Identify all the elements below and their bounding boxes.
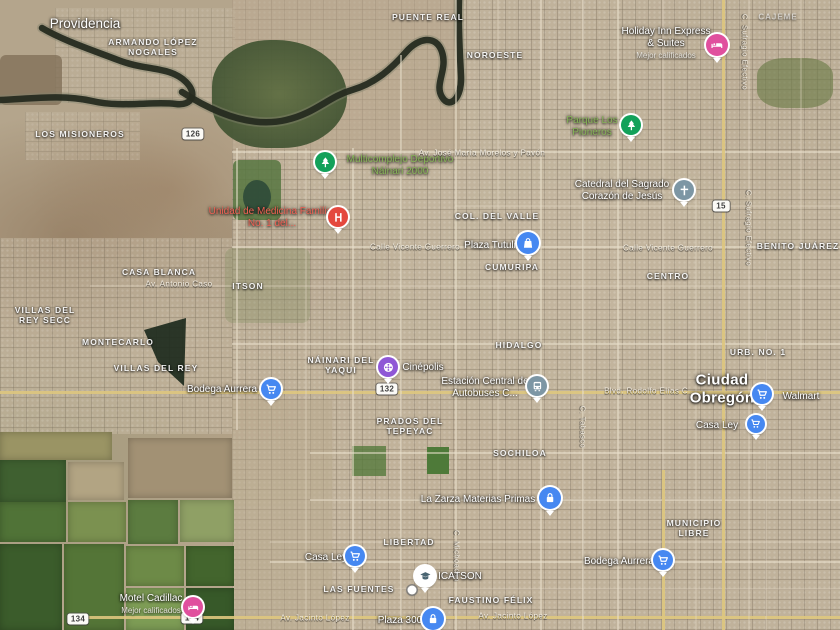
label-av-jos-mar-a-morelos-y-pav-n: Av. José María Morelos y Pavón	[419, 148, 545, 157]
farm-field	[0, 460, 66, 502]
farm-field	[68, 462, 124, 500]
plaza-300-lock-pin[interactable]	[422, 608, 444, 630]
farm-field	[180, 500, 234, 542]
farm-field	[0, 432, 112, 460]
label-walmart[interactable]: Walmart	[783, 391, 820, 403]
road	[617, 0, 619, 630]
farm-field	[186, 546, 234, 586]
la-zarza-lock-pin[interactable]	[539, 487, 561, 509]
catedral-sagrado-corazon-cross-pin[interactable]	[674, 180, 694, 200]
road	[270, 541, 840, 543]
unidad-medicina-familiar-hospital-pin[interactable]	[328, 207, 348, 227]
estacion-central-autobuses-bus-pin[interactable]	[527, 376, 547, 396]
label-av-jacinto-l-pez: Av. Jacinto López	[478, 611, 547, 620]
route-shield-15-1: 15	[713, 201, 730, 212]
label-icatson[interactable]: ICATSON	[438, 571, 482, 583]
casa-ley-cart-pin[interactable]	[345, 546, 365, 566]
label-casa-ley[interactable]: Casa Ley	[305, 552, 347, 564]
route-shield-126-0: 126	[182, 129, 203, 140]
label-sochiloa: SOCHILOA	[493, 448, 547, 458]
label-itson: ITSON	[232, 281, 263, 291]
label-calle-vicente-guerrero: Calle Vicente Guerrero	[623, 243, 713, 252]
farm-field	[126, 546, 184, 586]
satellite-map[interactable]: ProvidenciaARMANDO LÓPEZ NOGALESPUENTE R…	[0, 0, 840, 630]
label-cajeme: CAJEME	[758, 12, 797, 21]
label-sub-holiday-inn-express-suites: Mejor calificados	[620, 51, 712, 60]
casa-ley-norte-cart-pin[interactable]	[747, 415, 765, 433]
label-plaza-tutuli[interactable]: Plaza Tutuli	[464, 240, 516, 252]
bodega-aurrera-sur-cart-pin[interactable]	[653, 550, 673, 570]
label-benito-ju-rez: BENITO JUÁREZ	[757, 241, 840, 251]
label-municipio-libre: MUNICIPIO LIBRE	[658, 518, 730, 538]
label-estaci-n-central-de-autobuses-c[interactable]: Estación Central de Autobuses C...	[429, 376, 541, 400]
label-villas-del-rey-secc: VILLAS DEL REY SECC	[8, 305, 82, 325]
farm-field	[128, 500, 178, 544]
label-c-tabasco: C. Tabasco	[578, 406, 587, 448]
cinepolis-reel-pin[interactable]	[378, 357, 398, 377]
label-multicomplejo-deportivo-n-inari-2000[interactable]: Multicomplejo Deportivo Náinari 2000	[338, 154, 462, 178]
road	[330, 588, 840, 590]
label-av-jacinto-l-pez: Av. Jacinto López	[280, 613, 349, 622]
label-libertad: LIBERTAD	[383, 537, 434, 547]
label-plaza-300[interactable]: Plaza 300	[378, 615, 422, 627]
label-las-fuentes: LAS FUENTES	[323, 584, 394, 594]
label-los-misioneros: LOS MISIONEROS	[35, 129, 125, 139]
label-bodega-aurrera[interactable]: Bodega Aurrera	[584, 556, 654, 568]
label-prados-del-tepeyac: PRADOS DEL TEPEYAC	[372, 416, 448, 436]
road	[748, 0, 750, 630]
label-n-inari-del-yaqui: NÁINARI DEL YAQUI	[306, 355, 376, 375]
label-ciudad-obreg-n: Ciudad Obregón	[682, 371, 762, 406]
farm-field	[0, 502, 66, 542]
label-catedral-del-sagrado-coraz-n-de-jes-s[interactable]: Catedral del Sagrado Corazón de Jesús	[562, 179, 682, 203]
label-col-del-valle: COL. DEL VALLE	[455, 211, 540, 221]
label-bodega-aurrera[interactable]: Bodega Aurrera	[187, 384, 257, 396]
road	[310, 499, 840, 501]
label-centro: CENTRO	[647, 271, 690, 281]
route-shield-134-4: 134	[67, 614, 88, 625]
walmart-cart-pin[interactable]	[752, 384, 772, 404]
multicomplejo-deportivo-tree-pin[interactable]	[315, 152, 335, 172]
label-providencia: Providencia	[50, 16, 121, 32]
icatson-grad-pin[interactable]	[415, 566, 435, 586]
dense-houses-patch	[0, 55, 62, 105]
label-noroeste: NOROESTE	[467, 50, 524, 60]
label-holiday-inn-express-suites[interactable]: Holiday Inn Express & SuitesMejor califi…	[620, 26, 712, 60]
label-cin-polis[interactable]: Cinépolis	[402, 362, 443, 374]
label-calle-vicente-guerrero: Calle Vicente Guerrero	[370, 242, 460, 251]
label-puente-real: PUENTE REAL	[392, 12, 464, 22]
label-av-antonio-caso: Av. Antonio Caso	[145, 279, 212, 288]
parque-los-pioneros-tree-pin[interactable]	[621, 115, 641, 135]
road	[310, 452, 840, 454]
label-hidalgo: HIDALGO	[496, 340, 543, 350]
label-unidad-de-medicina-familiar-no-1-del[interactable]: Unidad de Medicina Familiar No. 1 del...	[205, 206, 340, 230]
road	[540, 0, 542, 630]
road	[582, 0, 584, 630]
farm-field	[128, 438, 232, 498]
label-casa-blanca: CASA BLANCA	[122, 267, 196, 277]
label-armando-l-pez-nogales: ARMANDO LÓPEZ NOGALES	[103, 37, 203, 57]
label-urb-no-1: URB. NO. 1	[730, 347, 786, 357]
route-shield-132-2: 132	[376, 384, 397, 395]
road	[765, 330, 767, 630]
bodega-aurrera-cart-pin[interactable]	[261, 379, 281, 399]
label-c-sufragio-efectivo: C. Sufragio Efectivo	[740, 14, 749, 90]
label-montecarlo: MONTECARLO	[82, 337, 154, 347]
holiday-inn-bed-pin[interactable]	[706, 34, 728, 56]
road	[662, 0, 664, 470]
label-la-zarza-materias-primas[interactable]: La Zarza Materias Primas	[421, 494, 535, 506]
farm-field	[0, 544, 62, 630]
label-c-sufragio-efectivo: C. Sufragio Efectivo	[744, 190, 753, 266]
label-villas-del-rey: VILLAS DEL REY	[114, 363, 199, 373]
label-faustino-f-lix: FAUSTINO FÉLIX	[449, 595, 534, 605]
label-casa-ley[interactable]: Casa Ley	[696, 420, 738, 432]
small-poi-dot-pin[interactable]	[408, 586, 417, 595]
label-parque-los-pioneros[interactable]: Parque Los Pioneros	[556, 115, 628, 139]
road	[800, 0, 802, 350]
farm-field	[68, 502, 126, 542]
label-sub-motel-cadillac: Mejor calificados	[120, 606, 183, 615]
label-cumuripa: CUMURIPA	[485, 262, 539, 272]
road	[455, 205, 840, 207]
plaza-tutuli-bag-pin[interactable]	[517, 232, 539, 254]
label-motel-cadillac[interactable]: Motel CadillacMejor calificados	[120, 593, 183, 615]
motel-cadillac-bed-pin[interactable]	[183, 597, 203, 617]
